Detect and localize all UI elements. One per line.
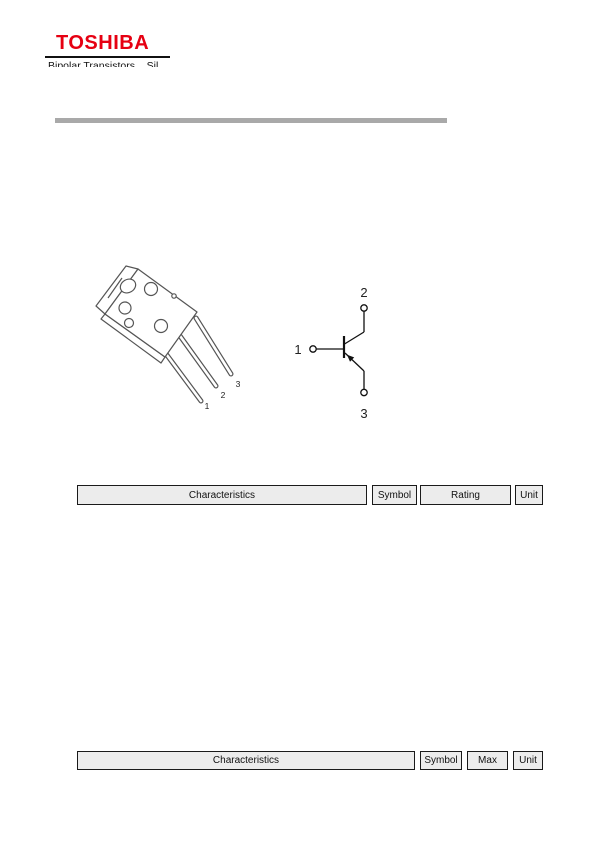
- ratings-header-symbol: Symbol: [372, 485, 417, 505]
- ratings-table-header-row: Characteristics Symbol Rating Unit: [0, 485, 601, 505]
- circuit-symbol-svg: 1 2 3: [288, 278, 378, 421]
- electrical-header-characteristics: Characteristics: [77, 751, 415, 770]
- package-drawing-figure: 1 2 3: [95, 265, 247, 410]
- symbol-lines: [310, 305, 367, 396]
- product-family-subtitle: Bipolar Transistors Sil: [48, 60, 158, 67]
- circuit-symbol-figure: 1 2 3: [288, 278, 378, 421]
- logo-underline-rule: [45, 56, 170, 58]
- toshiba-wordmark: TOSHIBA: [56, 32, 149, 55]
- symbol-base-label: 1: [294, 342, 301, 357]
- section-divider-bar: [55, 118, 447, 123]
- package-drawing-svg: 1 2 3: [95, 265, 247, 410]
- electrical-header-max: Max: [467, 751, 508, 770]
- symbol-collector-label: 2: [360, 285, 367, 300]
- ratings-header-rating: Rating: [420, 485, 511, 505]
- ratings-header-unit: Unit: [515, 485, 543, 505]
- ratings-header-characteristics: Characteristics: [77, 485, 367, 505]
- symbol-emitter-label: 3: [360, 406, 367, 421]
- toshiba-logo-block: TOSHIBA Bipolar Transistors Sil: [40, 20, 170, 67]
- package-pin3-label: 3: [236, 379, 241, 389]
- package-body: [96, 266, 197, 363]
- electrical-header-unit: Unit: [513, 751, 543, 770]
- electrical-table-header-row: Characteristics Symbol Max Unit: [0, 751, 601, 770]
- datasheet-page: TOSHIBA Bipolar Transistors Sil: [0, 0, 601, 850]
- package-pin1-label: 1: [205, 401, 210, 410]
- electrical-header-symbol: Symbol: [420, 751, 462, 770]
- package-pin2-label: 2: [221, 390, 226, 400]
